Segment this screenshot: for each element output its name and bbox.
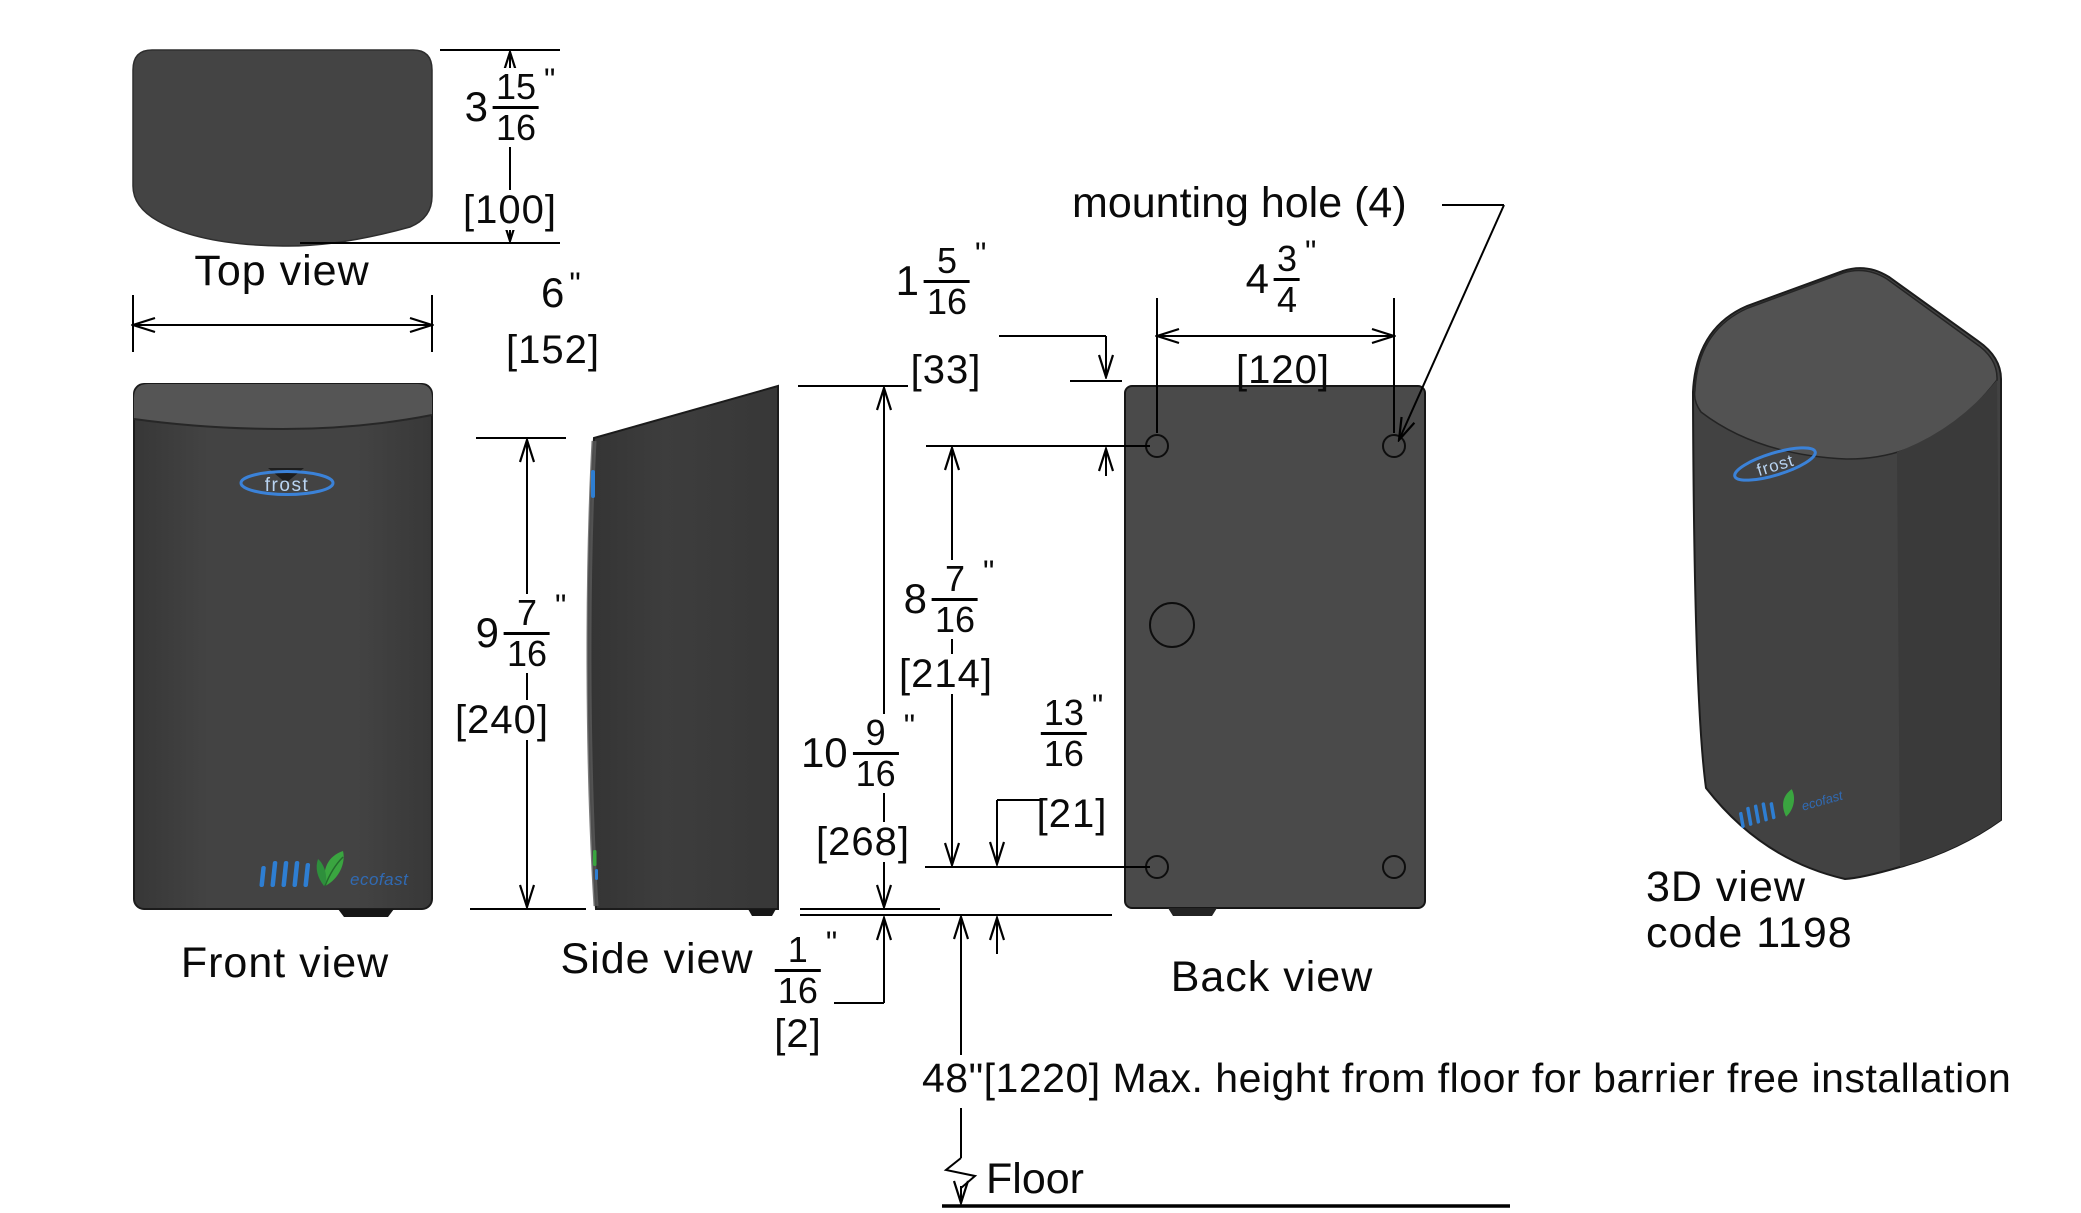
dim-front-height-mm: [240] [448,700,556,740]
dim-hole-bottom-offset-mm: [21] [1037,794,1108,834]
floor-label: Floor [986,1158,1084,1201]
side-leaf-edge-mark [593,850,597,866]
frost-logo-text: frost [265,475,309,496]
top-view-label: Top view [194,250,369,293]
side-view-label: Side view [560,938,753,981]
dim-hole-vspacing-mm: [214] [892,654,1000,694]
three-d-view-body: frost ecofast [1693,268,2001,879]
side-foot [748,909,776,916]
dim-hole-hspacing-mm: [120] [1236,350,1330,390]
dim-hole-hspacing: 4 34 " [1246,240,1317,319]
top-view-body [133,50,432,246]
leader-mounting-hole-diag [1399,205,1504,440]
three-d-right-face [1897,380,2001,867]
dim-front-height: 9 716 " [469,594,574,673]
dim-hole-top-offset: 1 516 " [896,242,987,321]
eco-wordmark-text: ecofast [350,870,409,889]
dim-width: 6 " [541,272,581,314]
front-view-label: Front view [181,942,389,985]
dim-hole-bottom-offset: 1316 " [1041,694,1103,773]
dim-bottom-lip-mm: [2] [774,1014,821,1054]
dim-hole-top-offset-mm: [33] [911,350,982,390]
dim-depth-mm: [100] [456,190,564,230]
install-height-note: 48"[1220] Max. height from floor for bar… [922,1058,2011,1099]
back-view-body [1125,386,1425,916]
dim-overall-height: 10 916 " [794,714,922,793]
front-view-body: frost ecofast [134,384,432,917]
three-d-code-label: code 1198 [1646,912,1853,955]
side-eco-edge-mark [595,869,598,880]
dim-overall-height-mm: [268] [809,822,917,862]
dim-width-mm: [152] [506,330,600,370]
dim-hole-vspacing: 8 716 " [897,560,1002,639]
technical-drawing-sheet: frost ecofast [0,0,2081,1213]
break-symbol [946,1158,975,1188]
back-bottom-notch [1168,908,1217,916]
mounting-hole-callout: mounting hole (4) [1072,182,1407,225]
side-logo-edge-mark [591,470,595,498]
side-view-body [589,386,778,916]
front-foot [338,909,394,917]
dim-bottom-lip: 116 " [775,931,837,1010]
back-view-label: Back view [1171,956,1374,999]
dim-depth: 3 1516 " [458,68,563,147]
drawing-linework: frost ecofast [0,0,2081,1213]
three-d-view-label: 3D view [1646,866,1806,909]
